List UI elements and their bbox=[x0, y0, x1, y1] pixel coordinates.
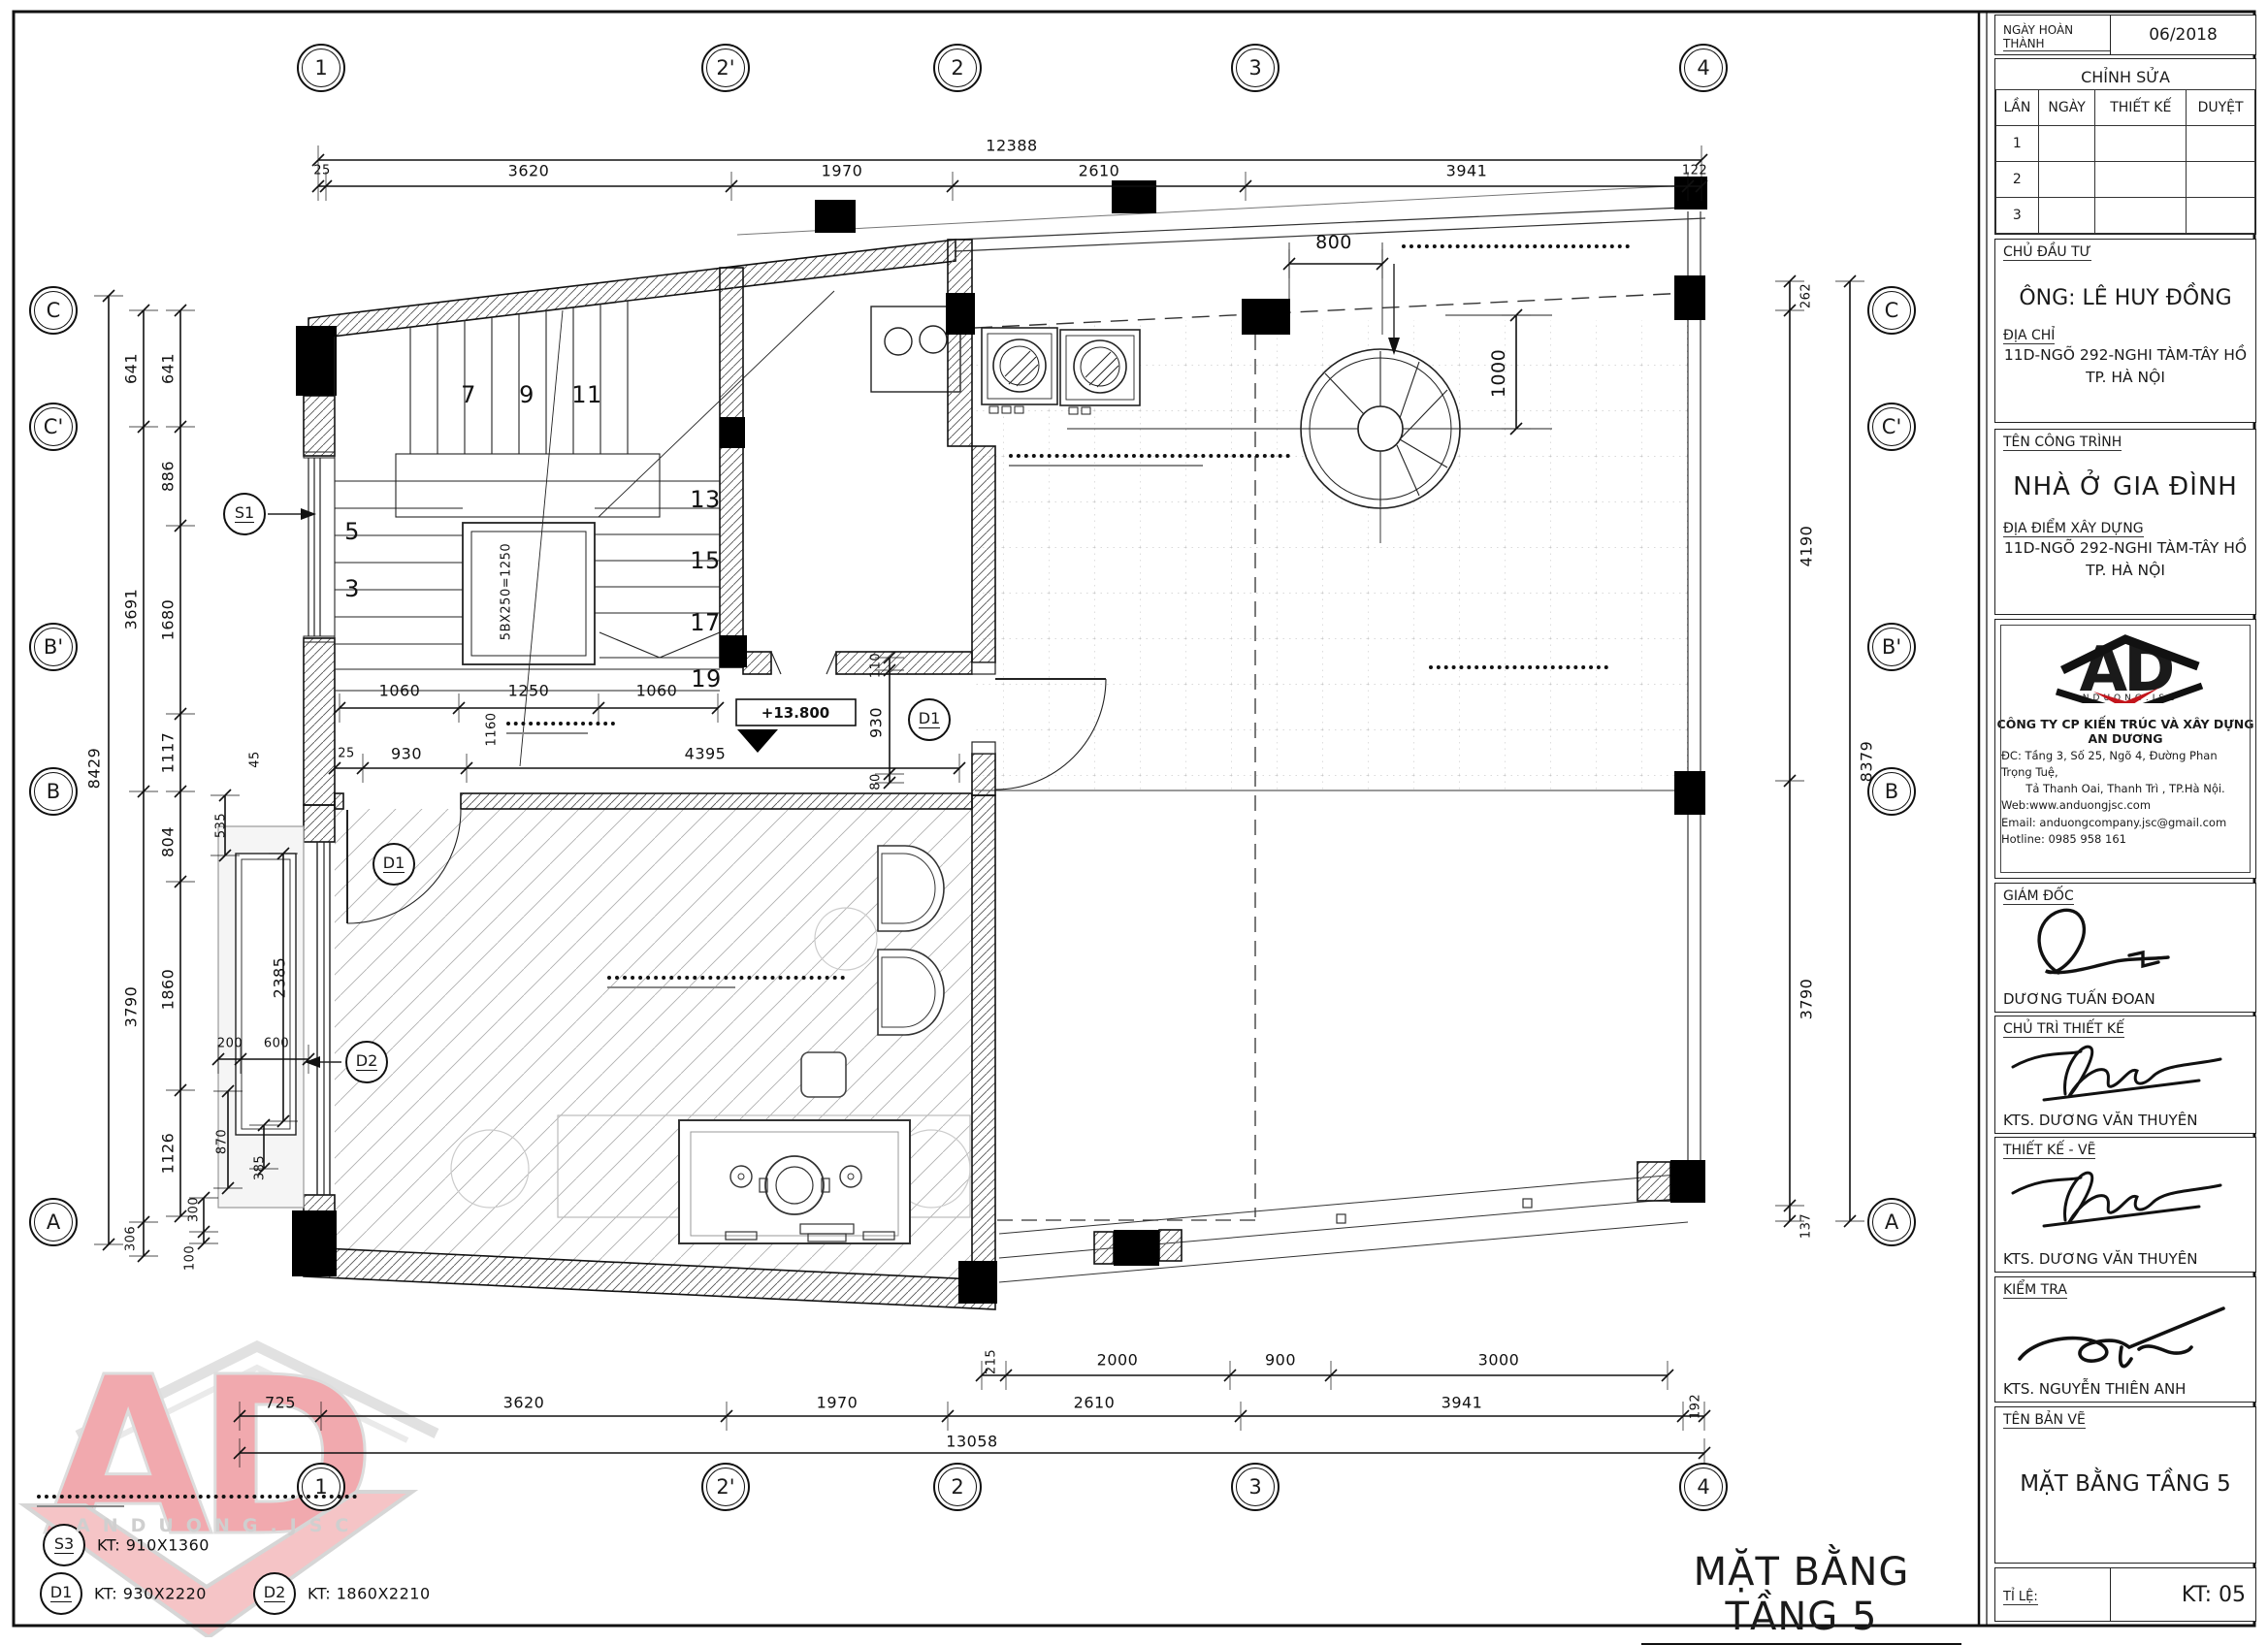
grid-col-2p-top: 2' bbox=[701, 44, 750, 92]
floor-plan-linework: AD bbox=[0, 0, 2268, 1637]
dim-label: 804 bbox=[159, 826, 178, 857]
completion-date-label: NGÀY HOÀN THÀNH bbox=[2003, 23, 2110, 51]
scale-label: TỈ LỆ: bbox=[2003, 1590, 2038, 1605]
dim-top-overall: 12388 bbox=[986, 137, 1037, 155]
dim-label: 600 bbox=[264, 1037, 289, 1051]
dim-chain-bottom-chain bbox=[234, 1402, 1710, 1431]
dim-label: 2385 bbox=[271, 957, 289, 999]
grid-row-Bp-left: B' bbox=[29, 623, 78, 671]
grid-col-4-top: 4 bbox=[1679, 44, 1728, 92]
dim-label: 192 bbox=[1689, 1394, 1703, 1419]
dim-label: 200 bbox=[217, 1037, 243, 1051]
grid-row-Cp-right: C' bbox=[1867, 403, 1916, 451]
dim-label: 3941 bbox=[1442, 1394, 1483, 1412]
lead-signature bbox=[2005, 1038, 2228, 1106]
grid-row-Cp-left: C' bbox=[29, 403, 78, 451]
dim-label: 800 bbox=[1315, 232, 1352, 253]
rev-row-2: 2 bbox=[1996, 162, 2039, 198]
lead-name: KTS. DƯƠNG VĂN THUYÊN bbox=[2003, 1112, 2197, 1129]
dotted-annotation bbox=[1402, 244, 1630, 248]
dim-label: 870 bbox=[215, 1129, 230, 1154]
stair-step-19: 19 bbox=[691, 665, 722, 693]
grid-row-B-left: B bbox=[29, 767, 78, 816]
completion-date-value: 06/2018 bbox=[2111, 16, 2255, 54]
lead-designer-section: CHỦ TRÌ THIẾT KẾ KTS. DƯƠNG VĂN THUYÊN bbox=[1994, 1016, 2256, 1134]
dim-chain-right-chain bbox=[1775, 275, 1804, 1227]
checker-label: KIỂM TRA bbox=[2003, 1282, 2067, 1299]
dim-label: 25 bbox=[313, 164, 331, 178]
checker-signature bbox=[2005, 1299, 2238, 1376]
grid-row-A-left: A bbox=[29, 1198, 78, 1246]
dim-label: 930 bbox=[391, 745, 422, 763]
dim-label: 306 bbox=[124, 1226, 139, 1251]
grid-row-Bp-right: B' bbox=[1867, 623, 1916, 671]
investor-label: CHỦ ĐẦU TƯ bbox=[2003, 244, 2091, 261]
grid-col-3-top: 3 bbox=[1231, 44, 1280, 92]
dim-label: 4395 bbox=[685, 745, 727, 763]
designer-label: THIẾT KẾ - VẼ bbox=[2003, 1143, 2095, 1159]
dim-bottom-overall: 13058 bbox=[946, 1433, 997, 1451]
dim-label: 1970 bbox=[822, 162, 863, 180]
grid-col-1-bottom: 1 bbox=[297, 1463, 345, 1511]
dim-label: 122 bbox=[1682, 164, 1707, 178]
dim-label: 1680 bbox=[159, 599, 178, 641]
dim-label: 1000 bbox=[1488, 349, 1509, 398]
drawing-name-label: TÊN BẢN VẼ bbox=[2003, 1412, 2086, 1429]
dotted-annotation-underline bbox=[37, 1505, 124, 1507]
dim-label: 385 bbox=[253, 1155, 268, 1180]
dim-label: 1250 bbox=[508, 682, 550, 700]
dotted-annotation-underline bbox=[506, 732, 588, 734]
address-label: ĐỊA CHỈ bbox=[2003, 328, 2055, 344]
grid-row-A-right: A bbox=[1867, 1198, 1916, 1246]
stair-step-17: 17 bbox=[690, 609, 721, 636]
dim-label: 1860 bbox=[159, 969, 178, 1011]
dotted-annotation bbox=[37, 1495, 357, 1499]
washing-machines bbox=[982, 328, 1140, 414]
director-label: GIÁM ĐỐC bbox=[2003, 888, 2074, 905]
dim-label: 1060 bbox=[379, 682, 421, 700]
project-name: NHÀ Ở GIA ĐÌNH bbox=[1995, 472, 2255, 501]
grid-col-2-bottom: 2 bbox=[933, 1463, 982, 1511]
dim-chain-spiral-800 bbox=[1283, 249, 1388, 278]
company-logo-box: AD ANDUONG.JSC CÔNG TY CP KIẾN TRÚC VÀ X… bbox=[1994, 619, 2256, 879]
grid-col-4-bottom: 4 bbox=[1679, 1463, 1728, 1511]
lead-label: CHỦ TRÌ THIẾT KẾ bbox=[2003, 1021, 2124, 1038]
scale-row: TỈ LỆ: KT: 05 bbox=[1994, 1567, 2256, 1622]
stair-step-5: 5 bbox=[344, 518, 360, 545]
ad-logo-icon bbox=[1996, 628, 2254, 703]
rev-row-1: 1 bbox=[1996, 126, 2039, 162]
drawing-sheet: AD bbox=[0, 0, 2268, 1637]
rev-row-3: 3 bbox=[1996, 198, 2039, 234]
dim-label: 900 bbox=[1265, 1351, 1296, 1370]
designer-signature bbox=[2005, 1159, 2228, 1237]
project-section: TÊN CÔNG TRÌNH NHÀ Ở GIA ĐÌNH ĐỊA ĐIỂM X… bbox=[1994, 429, 2256, 615]
dotted-annotation bbox=[1009, 454, 1290, 458]
stair-step-13: 13 bbox=[690, 486, 721, 513]
grid-col-2p-bottom: 2' bbox=[701, 1463, 750, 1511]
dim-label: 3790 bbox=[1798, 979, 1816, 1020]
stair-step-7: 7 bbox=[461, 381, 476, 408]
dim-label: 2000 bbox=[1097, 1351, 1139, 1370]
drawing-name-section: TÊN BẢN VẼ MẶT BẰNG TẦNG 5 bbox=[1994, 1406, 2256, 1564]
dim-label: 641 bbox=[122, 353, 141, 384]
dim-label: 725 bbox=[265, 1394, 296, 1412]
site-line1: 11D-NGÕ 292-NGHI TÀM-TÂY HỒ bbox=[1995, 537, 2255, 560]
dim-label: 3620 bbox=[503, 1394, 545, 1412]
grid-row-C-left: C bbox=[29, 286, 78, 335]
dim-label: 3620 bbox=[508, 162, 550, 180]
project-label: TÊN CÔNG TRÌNH bbox=[2003, 435, 2122, 451]
sheet-number: KT: 05 bbox=[2111, 1568, 2255, 1621]
dim-label: 1160 bbox=[485, 712, 500, 746]
dim-label: 1970 bbox=[817, 1394, 859, 1412]
grid-row-C-right: C bbox=[1867, 286, 1916, 335]
dotted-annotation bbox=[506, 722, 615, 726]
stair-step-3: 3 bbox=[344, 575, 360, 602]
dim-label: 137 bbox=[1799, 1213, 1814, 1239]
director-signature bbox=[2005, 905, 2199, 987]
door-tag-D1-room: D1 bbox=[373, 843, 415, 886]
rev-header-thietke: THIẾT KẾ bbox=[2095, 90, 2187, 126]
dim-label: 3941 bbox=[1446, 162, 1488, 180]
stair-step-11: 11 bbox=[571, 381, 602, 408]
designer-section: THIẾT KẾ - VẼ KTS. DƯƠNG VĂN THUYÊN bbox=[1994, 1137, 2256, 1273]
door-tag-D2: D2 bbox=[345, 1041, 388, 1083]
drawing-name: MẶT BẰNG TẦNG 5 bbox=[1995, 1471, 2255, 1497]
rev-header-lan: LẦN bbox=[1996, 90, 2039, 126]
dim-label: 4190 bbox=[1798, 526, 1816, 567]
dim-label: 45 bbox=[248, 751, 263, 768]
dim-label: 262 bbox=[1799, 283, 1814, 308]
legend-size-S3: KT: 910X1360 bbox=[97, 1536, 210, 1555]
rev-header-ngay: NGÀY bbox=[2038, 90, 2095, 126]
dim-label: 1126 bbox=[159, 1133, 178, 1175]
legend-tag-D2: D2 bbox=[253, 1572, 296, 1615]
dim-label: 300 bbox=[187, 1197, 202, 1222]
window-tag-S1: S1 bbox=[223, 493, 266, 535]
dim-label: 215 bbox=[985, 1349, 999, 1374]
grid-col-1-top: 1 bbox=[297, 44, 345, 92]
completion-date-row: NGÀY HOÀN THÀNH 06/2018 bbox=[1994, 15, 2256, 55]
dim-label: 3790 bbox=[122, 986, 141, 1028]
director-name: DƯƠNG TUẤN ĐOAN bbox=[2003, 990, 2155, 1008]
address-line1: 11D-NGÕ 292-NGHI TÀM-TÂY HỒ bbox=[1995, 344, 2255, 367]
director-section: GIÁM ĐỐC DƯƠNG TUẤN ĐOAN bbox=[1994, 883, 2256, 1013]
dim-label: 535 bbox=[214, 813, 229, 838]
investor-name: ÔNG: LÊ HUY ĐỒNG bbox=[1995, 286, 2255, 310]
legend-size-D2: KT: 1860X2210 bbox=[308, 1585, 431, 1603]
dim-label: 25 bbox=[338, 747, 355, 761]
grid-row-B-right: B bbox=[1867, 767, 1916, 816]
dim-label: 80 bbox=[869, 773, 884, 790]
grid-col-3-bottom: 3 bbox=[1231, 1463, 1280, 1511]
dim-label: 886 bbox=[159, 461, 178, 492]
address-line2: TP. HÀ NỘI bbox=[1995, 367, 2255, 389]
dim-label: 100 bbox=[183, 1245, 198, 1271]
dim-label: 2610 bbox=[1079, 162, 1120, 180]
dim-chain-bottom-partial bbox=[976, 1361, 1673, 1390]
rev-header-duyet: DUYỆT bbox=[2187, 90, 2255, 126]
revision-title: CHỈNH SỬA bbox=[1995, 68, 2255, 86]
dim-label: 3691 bbox=[122, 589, 141, 630]
site-line2: TP. HÀ NỘI bbox=[1995, 560, 2255, 582]
dim-label: 930 bbox=[867, 707, 886, 738]
checker-name: KTS. NGUYỄN THIÊN ANH bbox=[2003, 1380, 2186, 1398]
revision-table: CHỈNH SỬA LẦN NGÀY THIẾT KẾ DUYỆT 1 2 3 bbox=[1994, 58, 2256, 235]
legend-tag-D1: D1 bbox=[40, 1572, 82, 1615]
site-label: ĐỊA ĐIỂM XÂY DỰNG bbox=[2003, 521, 2144, 537]
dim-label: 2610 bbox=[1074, 1394, 1116, 1412]
dotted-annotation bbox=[1429, 665, 1608, 669]
drawing-main-title: MẶT BẰNG TẦNG 5 bbox=[1641, 1550, 1961, 1645]
stair-riser-note: 5BX250=1250 bbox=[500, 543, 514, 640]
dim-label: 1117 bbox=[159, 732, 178, 774]
dim-left-overall: 8429 bbox=[85, 748, 104, 790]
title-block: NGÀY HOÀN THÀNH 06/2018 CHỈNH SỬA LẦN NG… bbox=[1991, 0, 2264, 1637]
dim-label: 641 bbox=[159, 353, 178, 384]
stair-step-15: 15 bbox=[690, 547, 721, 574]
dim-label: 3000 bbox=[1478, 1351, 1520, 1370]
stair-step-9: 9 bbox=[519, 381, 535, 408]
dotted-annotation bbox=[607, 976, 845, 980]
investor-section: CHỦ ĐẦU TƯ ÔNG: LÊ HUY ĐỒNG ĐỊA CHỈ 11D-… bbox=[1994, 239, 2256, 423]
checker-section: KIỂM TRA KTS. NGUYỄN THIÊN ANH bbox=[1994, 1276, 2256, 1403]
watermark-letters: ANDUONG.JSC bbox=[76, 1515, 361, 1536]
grid-col-2-top: 2 bbox=[933, 44, 982, 92]
legend-size-D1: KT: 930X2220 bbox=[94, 1585, 207, 1603]
dim-chain-left-mid bbox=[129, 305, 158, 1262]
level-marker-value: +13.800 bbox=[761, 704, 829, 722]
dotted-annotation-underline bbox=[1009, 465, 1203, 467]
designer-name: KTS. DƯƠNG VĂN THUYÊN bbox=[2003, 1250, 2197, 1268]
dotted-annotation-underline bbox=[607, 986, 735, 988]
dim-label: 110 bbox=[869, 653, 884, 678]
dim-label: 1060 bbox=[636, 682, 678, 700]
door-tag-D1-hall: D1 bbox=[908, 698, 951, 741]
